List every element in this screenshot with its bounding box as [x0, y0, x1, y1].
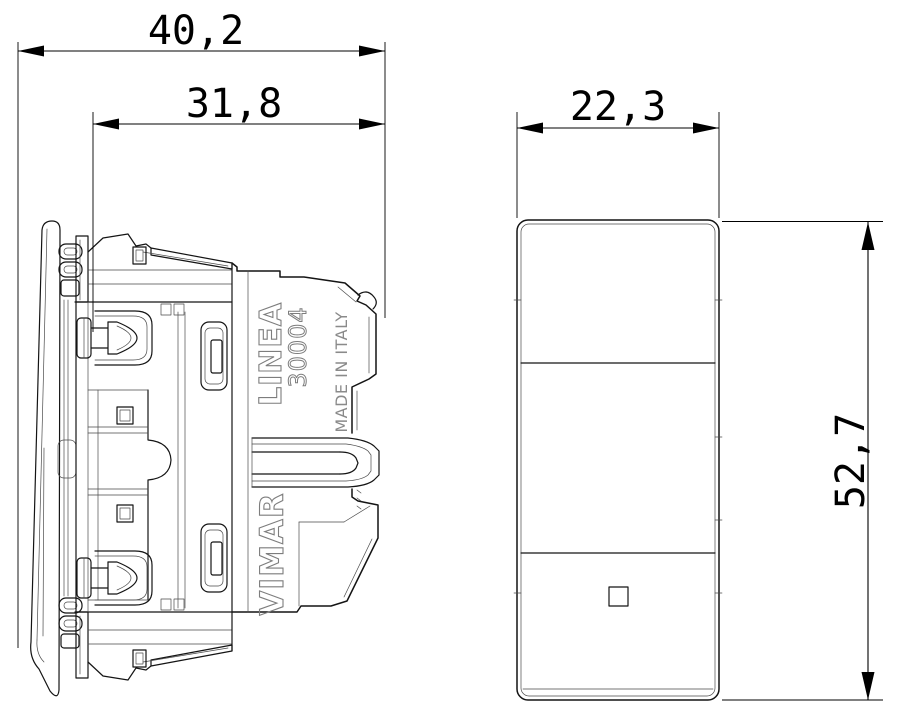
marking-brand: VIMAR — [253, 493, 291, 616]
clip-window-top — [201, 322, 227, 390]
indicator-square — [609, 587, 628, 606]
dimension-value: 52,7 — [828, 413, 874, 509]
spring-clip-bottom — [59, 598, 82, 648]
front-view — [514, 220, 722, 700]
arrowhead-bottom — [862, 672, 875, 700]
dimension-value: 22,3 — [570, 84, 666, 130]
dimension-value: 40,2 — [148, 8, 244, 54]
clip-window-bottom — [201, 524, 227, 592]
arrowhead-left — [517, 123, 543, 134]
edge-parting-ticks — [514, 300, 722, 593]
spring-clip-top — [59, 244, 82, 296]
arrowhead-right — [359, 46, 385, 57]
arrowhead-right — [359, 119, 385, 130]
arrowhead-right — [693, 123, 719, 134]
arrowhead-left — [93, 119, 119, 130]
arrowhead-top — [862, 222, 875, 250]
technical-drawing-page: LINEA 30004 MADE IN ITALY VIMAR 40,2 — [0, 0, 900, 720]
dimension-width: 22,3 — [517, 84, 719, 218]
mounting-frame — [58, 234, 232, 680]
rocker-face-inner-line — [521, 224, 715, 696]
module-markings: LINEA 30004 MADE IN ITALY VIMAR — [253, 302, 351, 616]
side-view: LINEA 30004 MADE IN ITALY VIMAR — [31, 221, 379, 696]
arrowhead-left — [18, 46, 44, 57]
rocker-face-outline — [517, 220, 719, 700]
marking-article-number: 30004 — [284, 306, 312, 387]
vimar-module-drawing: LINEA 30004 MADE IN ITALY VIMAR 40,2 — [0, 0, 900, 720]
dimension-body-depth: 31,8 — [93, 81, 385, 332]
dimension-height: 52,7 — [722, 222, 883, 701]
dimension-value: 31,8 — [186, 81, 282, 127]
marking-origin: MADE IN ITALY — [332, 311, 351, 432]
rocker-side-profile — [31, 221, 60, 696]
